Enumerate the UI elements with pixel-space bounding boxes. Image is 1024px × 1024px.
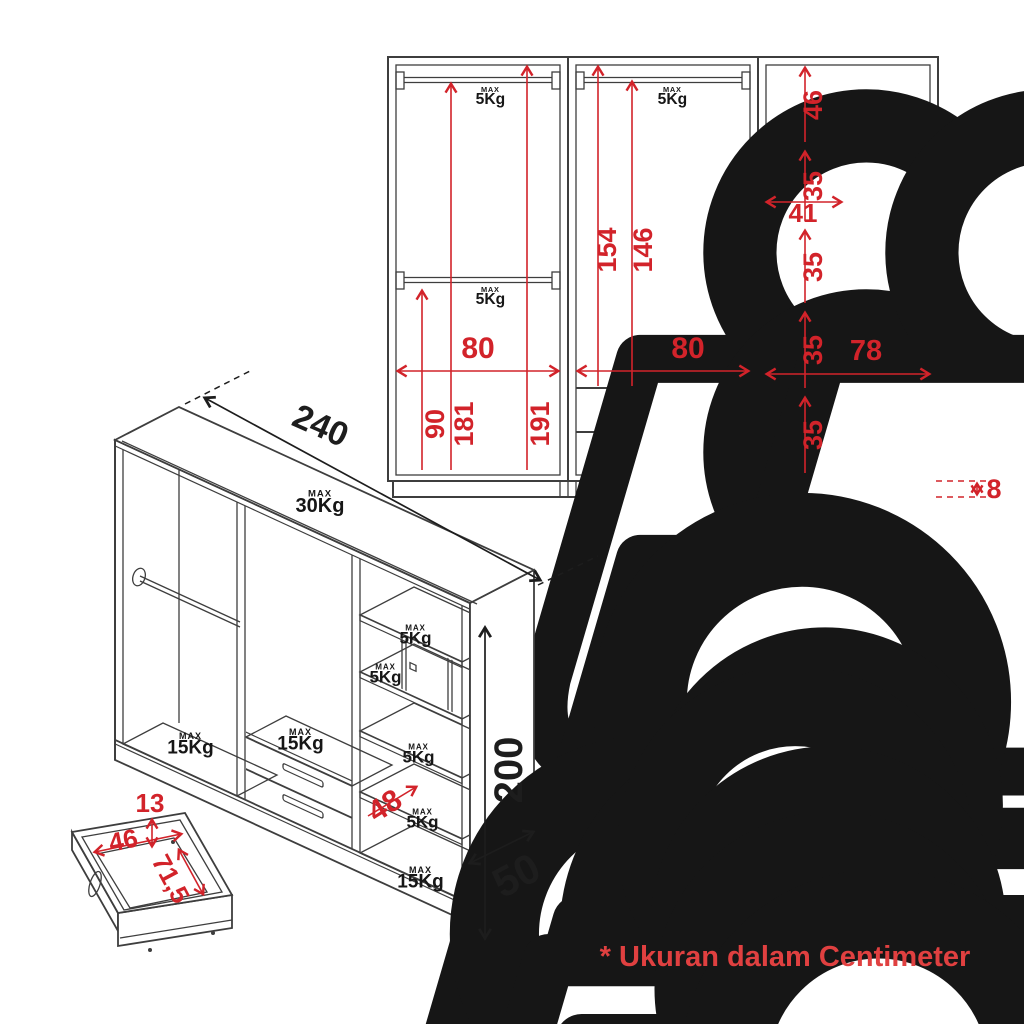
dim-label-8: 8: [986, 474, 1001, 504]
rod-bracket: [396, 72, 404, 89]
weight-value-label: 15Kg: [167, 738, 213, 759]
dim-label-41: 41: [789, 198, 818, 228]
weight-value-label: 15Kg: [397, 872, 443, 893]
dim-label-78: 78: [850, 335, 882, 367]
dim-label-80-mid: 80: [671, 332, 704, 365]
dim-label-13: 13: [136, 788, 165, 818]
foot-dot: [211, 931, 215, 935]
weight-value-label: 30Kg: [296, 495, 345, 517]
weight-value-label: 5Kg: [369, 668, 401, 687]
dim-ext-240-left: [185, 371, 250, 404]
rod-bracket: [742, 72, 750, 89]
rod-bracket: [552, 72, 560, 89]
wardrobe-dimension-diagram: MAX 5Kg MAX 5Kg MAX 5Kg 90 181 191 80 15: [0, 0, 1024, 1024]
drawer-detail-view: 13 46 71,5: [72, 788, 232, 952]
dim-label-240: 240: [287, 397, 354, 455]
weight-value-label: 5Kg: [399, 629, 431, 648]
dim-label-154: 154: [592, 227, 622, 272]
dim-label-35-3: 35: [798, 252, 828, 282]
weight-value-label: 5Kg: [476, 91, 505, 108]
dim-label-35-5: 35: [798, 420, 828, 450]
dim-label-191: 191: [525, 401, 555, 446]
rod-bracket: [396, 272, 404, 289]
foot-dot: [148, 948, 152, 952]
rod-line: [140, 581, 240, 627]
dim-label-200: 200: [487, 737, 531, 804]
dim-label-35-door: 35: [798, 171, 828, 201]
dim-label-80-left: 80: [461, 332, 494, 365]
rod-line: [140, 576, 240, 622]
rod-mount: [131, 567, 148, 588]
diagram-canvas: MAX 5Kg MAX 5Kg MAX 5Kg 90 181 191 80 15: [0, 0, 1024, 1024]
weight-value-label: 5Kg: [402, 748, 434, 767]
weight-value-label: 15Kg: [277, 734, 323, 755]
iso-hanging-rod: [131, 567, 240, 627]
dim-label-90: 90: [420, 409, 450, 439]
weight-value-label: 5Kg: [476, 291, 505, 308]
dim-label-46: 46: [798, 90, 828, 120]
dim-label-181: 181: [449, 401, 479, 446]
dim-label-46: 46: [106, 823, 141, 858]
screw-dot: [171, 840, 175, 844]
rod-bracket: [552, 272, 560, 289]
unit-note: * Ukuran dalam Centimeter: [600, 941, 971, 973]
drawer-handle: [283, 794, 323, 818]
rod-bracket: [576, 72, 584, 89]
weight-value-label: 5Kg: [658, 91, 687, 108]
dim-label-146: 146: [628, 227, 658, 272]
weight-value-label: 5Kg: [406, 813, 438, 832]
dim-label-35-4: 35: [798, 335, 828, 365]
